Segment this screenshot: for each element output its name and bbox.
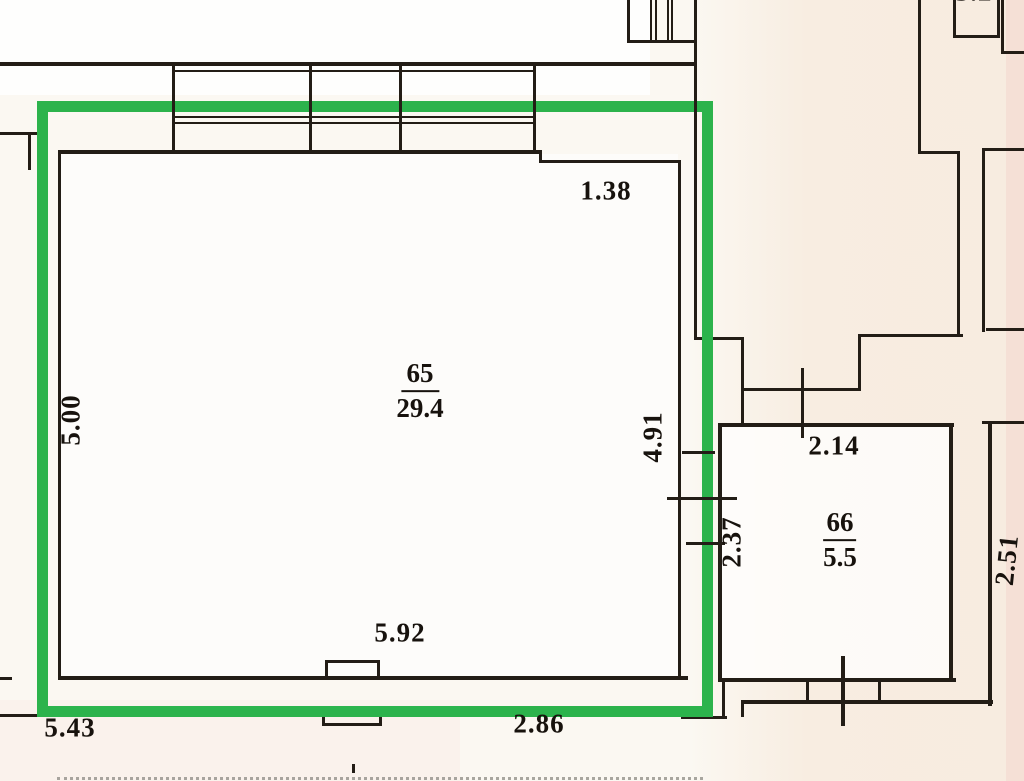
room-66-label: 66 5.5: [823, 508, 857, 572]
dimension-tick: [801, 368, 804, 438]
door-tick: [841, 656, 845, 726]
fraction-line: [401, 391, 439, 393]
dimension-tick: [682, 451, 715, 454]
room-66-right-wall: [949, 423, 953, 682]
wall-segment: [174, 70, 535, 72]
wall-segment: [741, 700, 744, 717]
wall-segment: [399, 64, 402, 154]
scan-edge-line: [57, 777, 703, 780]
dimension-4.91: 4.91: [640, 411, 667, 462]
room-66-area: 5.5: [823, 544, 857, 572]
wall-segment: [982, 148, 985, 332]
wall-segment: [650, 0, 652, 42]
wall-segment: [806, 680, 809, 704]
dimension-1.38: 1.38: [580, 178, 631, 205]
room-66-number: 66: [827, 508, 854, 536]
wall-segment: [309, 62, 312, 154]
room-66-top-wall: [718, 423, 954, 427]
wall-segment: [982, 421, 1024, 424]
wall-segment: [0, 714, 40, 717]
wall-segment: [957, 151, 960, 337]
wall-segment: [28, 134, 31, 170]
wall-segment: [918, 0, 921, 154]
room-65-number: 65: [407, 359, 434, 387]
wall-segment: [983, 148, 1024, 151]
room-65-area: 29.4: [396, 395, 443, 423]
wall-segment: [172, 62, 175, 154]
wall-segment: [533, 62, 536, 154]
wall-segment: [0, 132, 40, 135]
dimension-2.86: 2.86: [513, 711, 564, 738]
dimension-tick: [667, 497, 737, 500]
dimension-5.43: 5.43: [44, 715, 95, 742]
room-65-label: 65 29.4: [396, 359, 443, 423]
room-66-bottom-wall: [718, 678, 956, 682]
wall-segment: [667, 0, 669, 42]
wall-segment: [920, 151, 960, 154]
wall-segment: [858, 334, 861, 391]
scan-mark: [352, 764, 355, 773]
wall-segment: [986, 328, 1024, 331]
wall-segment: [0, 677, 12, 680]
paper-tint-top: [0, 0, 650, 95]
wall-segment: [741, 700, 993, 704]
wall-segment: [694, 0, 697, 340]
wall-segment: [627, 0, 630, 42]
wall-segment: [858, 334, 963, 337]
wall-segment: [655, 0, 657, 42]
floor-plan-scan: 65 29.4 66 5.5 5.00 1.38 4.91 2.37 2.14 …: [0, 0, 1024, 781]
wall-segment: [1001, 0, 1004, 53]
paper-tint-right-strip: [1006, 0, 1024, 781]
fraction-line: [824, 540, 857, 542]
wall-segment: [0, 62, 697, 66]
wall-segment: [722, 678, 725, 717]
wall-segment: [878, 680, 881, 704]
wall-segment: [627, 40, 697, 43]
dimension-2.37: 2.37: [719, 516, 746, 567]
dimension-3.2-clipped: 3.2: [956, 0, 993, 6]
dimension-5.92: 5.92: [374, 620, 425, 647]
dimension-2.14: 2.14: [808, 433, 859, 460]
wall-segment: [741, 337, 744, 426]
dimension-5.00: 5.00: [58, 394, 85, 445]
wall-segment: [1001, 51, 1024, 54]
dimension-2.51: 2.51: [991, 533, 1023, 587]
wall-segment: [671, 0, 673, 42]
